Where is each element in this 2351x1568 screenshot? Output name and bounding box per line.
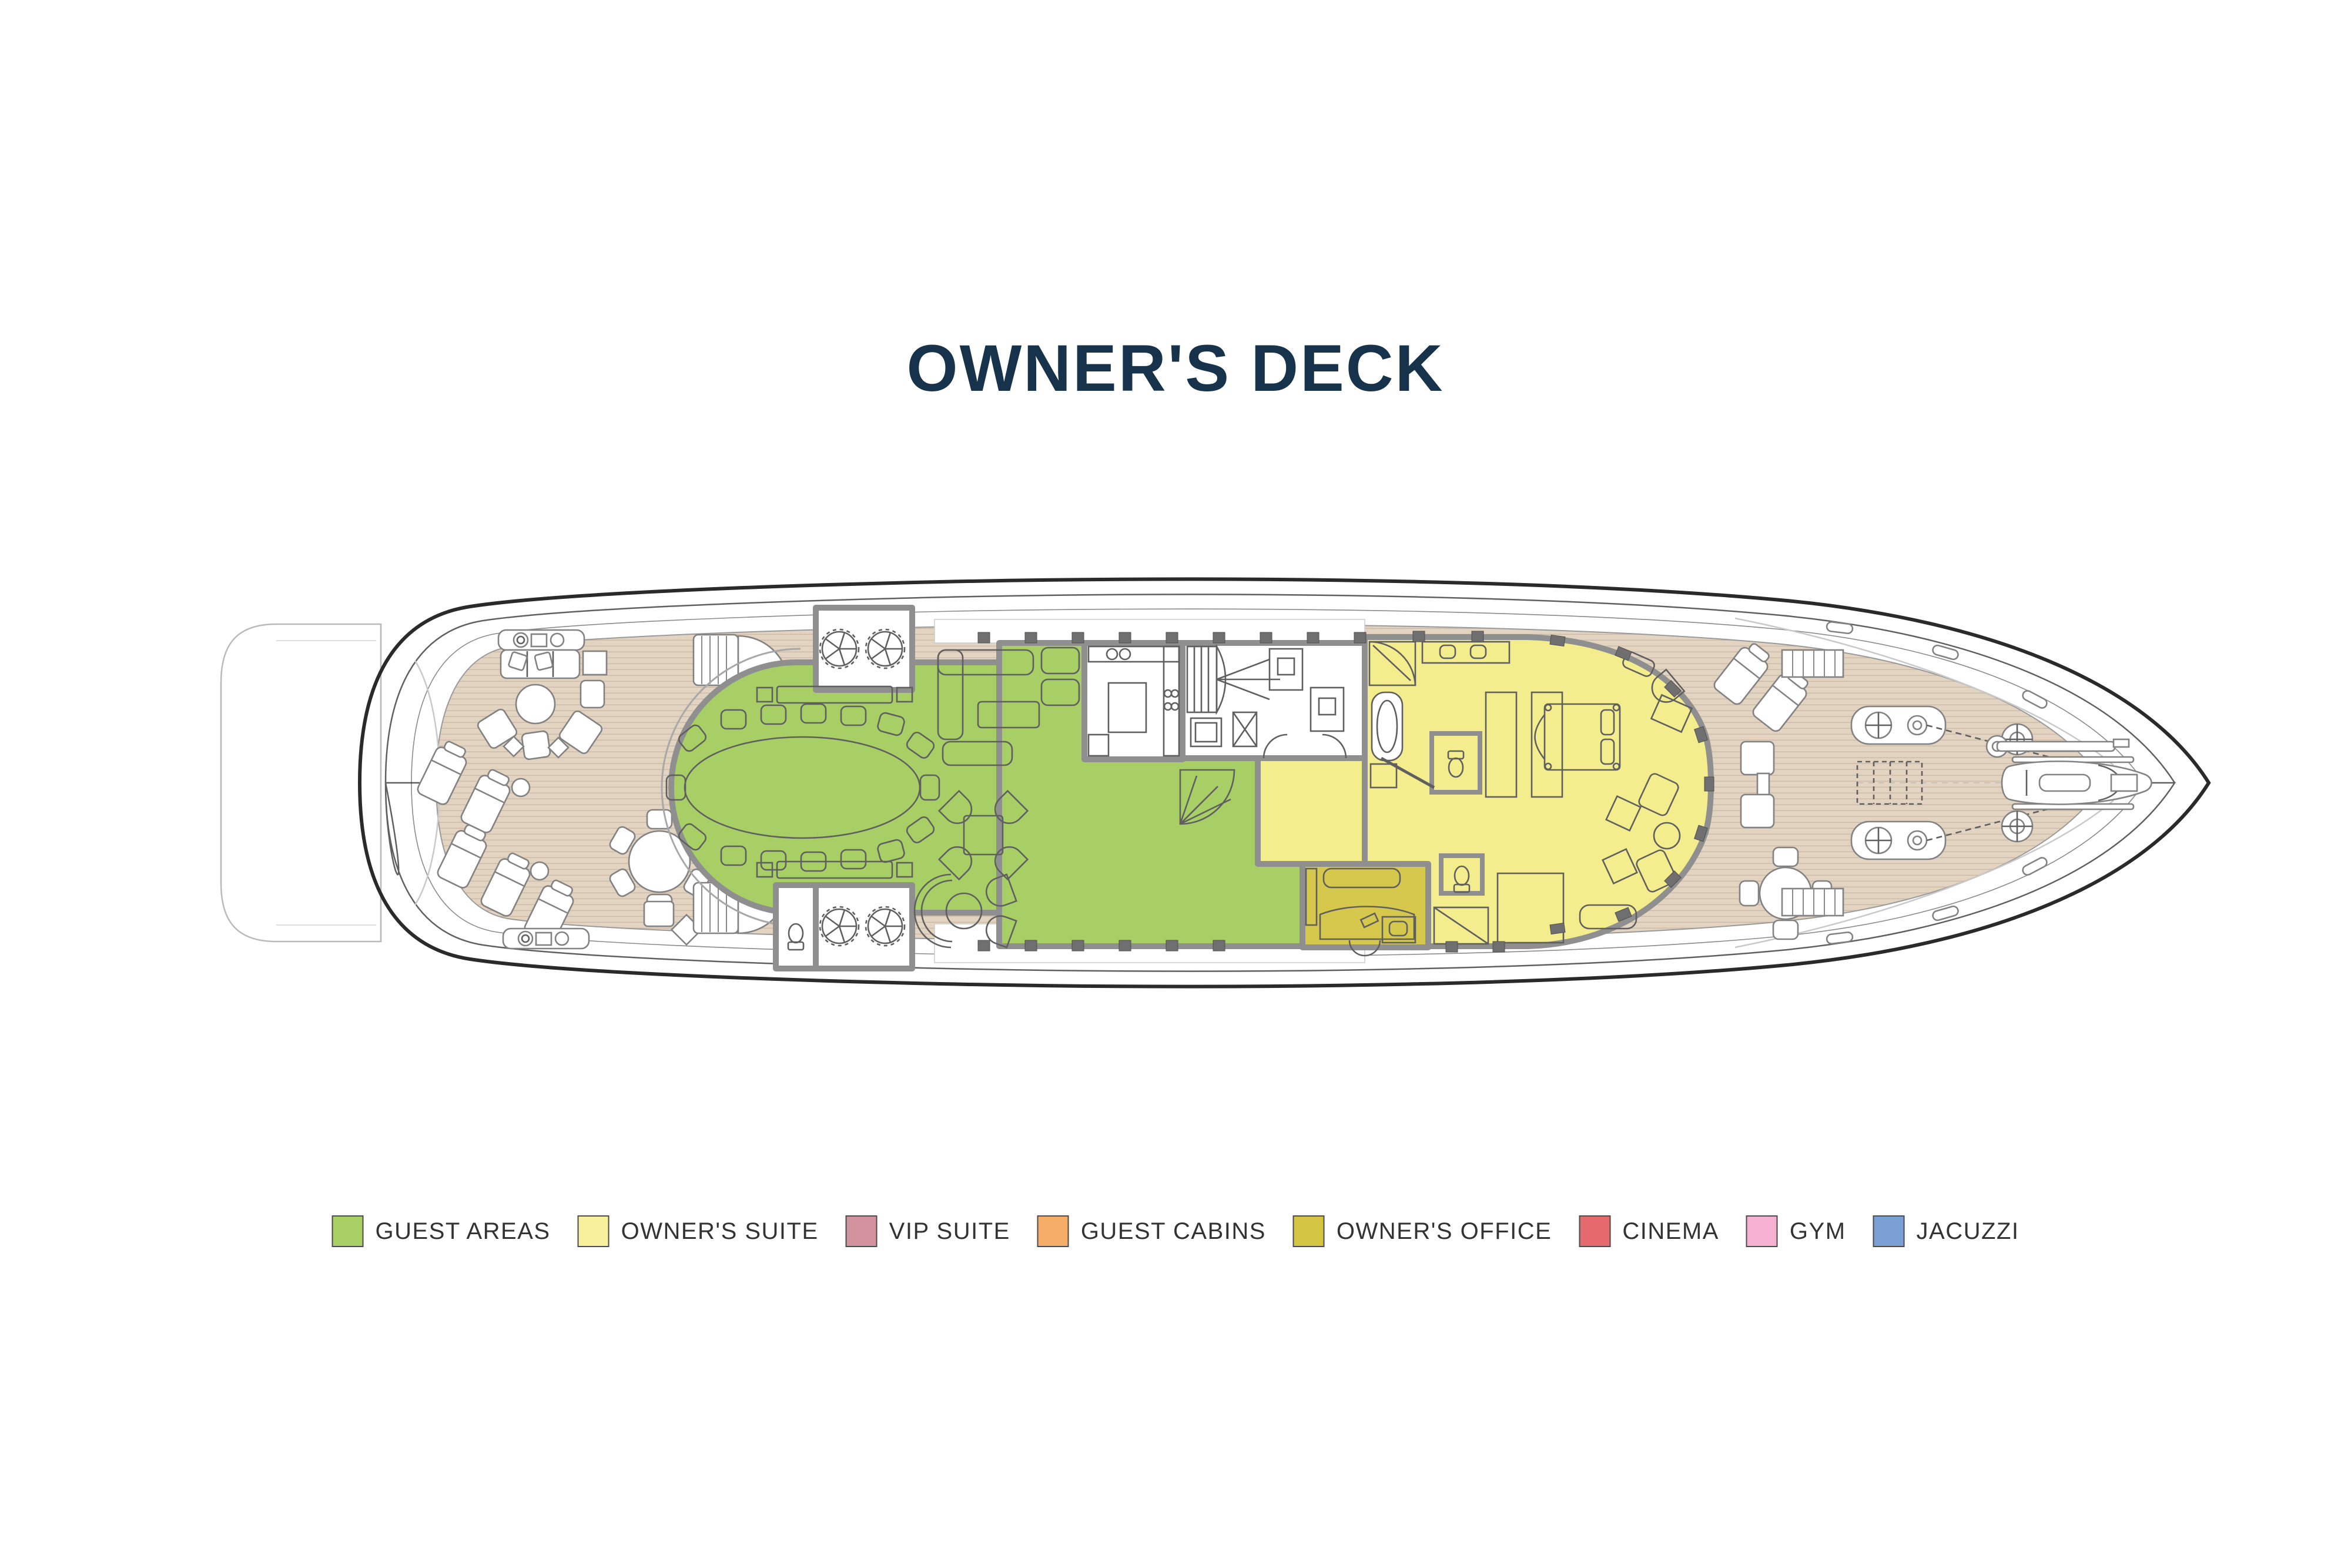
legend-item-jacuzzi: JACUZZI [1873,1215,2020,1247]
jacuzzi-label: JACUZZI [1917,1218,2020,1245]
side-deck-port [935,619,1365,643]
owners-suite-label: OWNER'S SUITE [621,1218,819,1245]
guest-areas-label: GUEST AREAS [376,1218,551,1245]
deck-plan [0,0,2351,1568]
legend-item-owners-office: OWNER'S OFFICE [1293,1215,1552,1247]
zone-dining-room [671,662,1011,913]
legend-item-guest-cabins: GUEST CABINS [1037,1215,1266,1247]
guest-areas-swatch [332,1215,364,1247]
owners-suite-swatch [578,1215,609,1247]
vip-suite-swatch [846,1215,878,1247]
zone-galley [1084,643,1183,759]
vip-suite-label: VIP SUITE [889,1218,1010,1245]
page: OWNER'S DECK [0,0,2351,1568]
side-table [583,651,607,675]
bathtub [1372,692,1402,760]
cinema-swatch [1579,1215,1610,1247]
sofa-aft-top [501,650,580,678]
media-console-aft-top [498,630,584,650]
guest-cabins-swatch [1037,1215,1069,1247]
jacuzzi-swatch [1873,1215,1905,1247]
anchor-hatch [2111,775,2137,791]
armchair [581,681,604,708]
legend-item-vip-suite: VIP SUITE [846,1215,1010,1247]
legend-item-gym: GYM [1746,1215,1846,1247]
cinema-label: CINEMA [1622,1218,1719,1245]
media-console-aft-bottom [503,929,589,949]
legend-item-guest-areas: GUEST AREAS [332,1215,551,1247]
gym-label: GYM [1790,1218,1846,1245]
guest-cabins-label: GUEST CABINS [1081,1218,1266,1245]
legend-item-cinema: CINEMA [1579,1215,1719,1247]
zone-day-head [776,885,816,969]
owners-office-label: OWNER'S OFFICE [1337,1218,1552,1245]
legend-item-owners-suite: OWNER'S SUITE [578,1215,819,1247]
zone-suite-corridor [1258,758,1365,864]
coffee-table-round [516,685,555,723]
gym-swatch [1746,1215,1778,1247]
swim-platform [221,624,381,942]
zone-owners-office [1302,864,1428,947]
owners-office-swatch [1293,1215,1325,1247]
legend: GUEST AREAS OWNER'S SUITE VIP SUITE GUES… [332,1215,2020,1247]
